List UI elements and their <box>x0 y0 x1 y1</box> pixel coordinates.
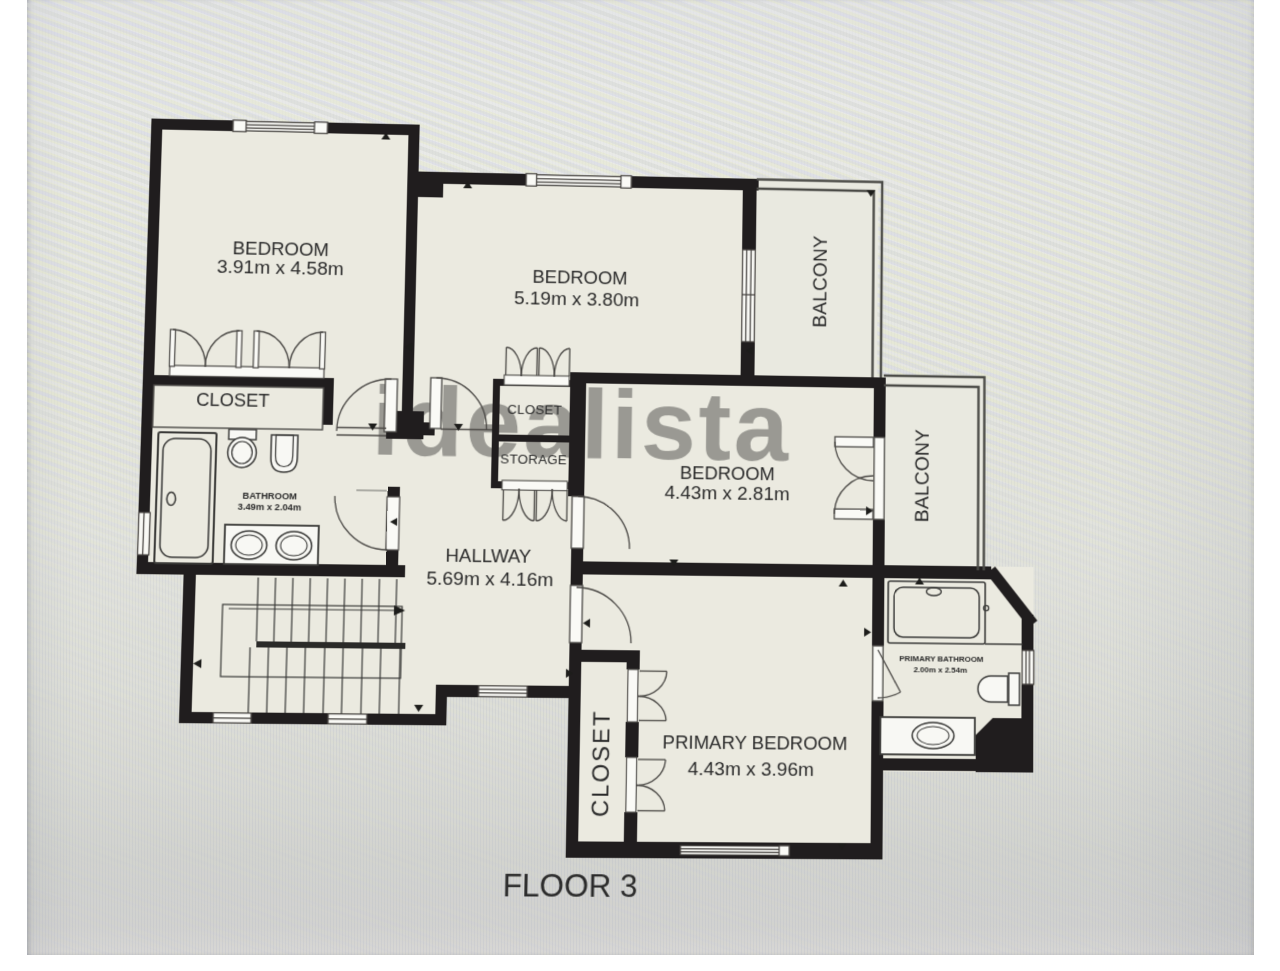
svg-text:STORAGE: STORAGE <box>500 451 567 467</box>
svg-text:3.91m x 4.58m: 3.91m x 4.58m <box>217 257 344 280</box>
svg-text:FLOOR 3: FLOOR 3 <box>502 867 638 904</box>
svg-text:5.69m x 4.16m: 5.69m x 4.16m <box>426 568 553 591</box>
svg-text:4.43m x 3.96m: 4.43m x 3.96m <box>688 759 814 781</box>
svg-text:CLOSET: CLOSET <box>587 709 615 817</box>
svg-text:2.00m x 2.54m: 2.00m x 2.54m <box>913 666 967 676</box>
svg-text:BEDROOM: BEDROOM <box>532 266 628 289</box>
svg-text:CLOSET: CLOSET <box>507 402 562 418</box>
svg-text:CLOSET: CLOSET <box>196 390 270 411</box>
svg-text:3.49m x 2.04m: 3.49m x 2.04m <box>238 502 302 513</box>
svg-text:PRIMARY BEDROOM: PRIMARY BEDROOM <box>662 731 847 754</box>
svg-text:BALCONY: BALCONY <box>809 235 832 328</box>
svg-text:BALCONY: BALCONY <box>911 429 933 523</box>
svg-text:PRIMARY BATHROOM: PRIMARY BATHROOM <box>899 654 984 664</box>
svg-text:5.19m x 3.80m: 5.19m x 3.80m <box>514 289 639 312</box>
svg-text:BEDROOM: BEDROOM <box>680 462 775 484</box>
svg-text:BATHROOM: BATHROOM <box>242 491 297 502</box>
svg-text:4.43m x 2.81m: 4.43m x 2.81m <box>664 483 789 506</box>
svg-text:HALLWAY: HALLWAY <box>445 545 531 567</box>
